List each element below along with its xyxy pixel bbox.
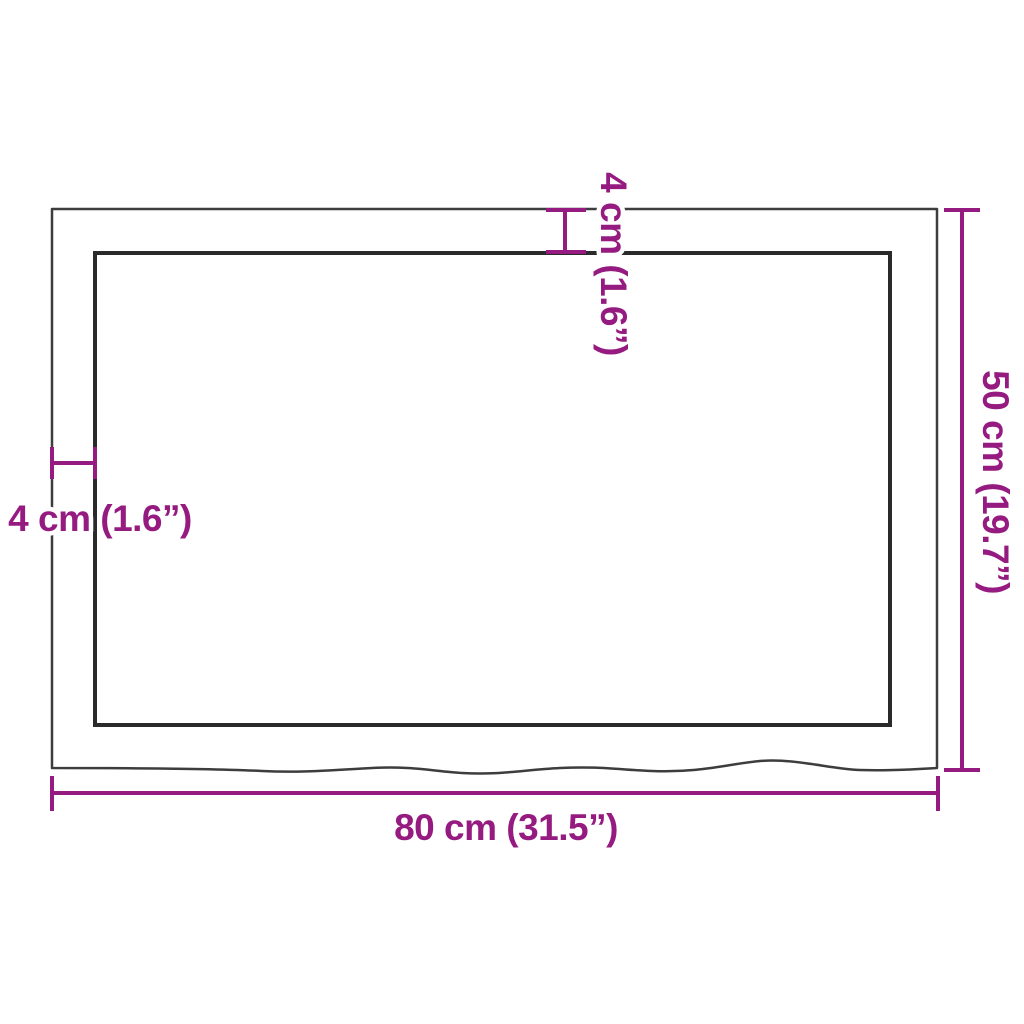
thickness-top-dimension-line [546,210,586,252]
height-label: 50 cm (19.7”) [975,370,1016,594]
thickness-left-dimension-line [52,447,95,479]
board-outer-edge [52,209,937,773]
width-dimension-line [52,776,938,811]
thickness-top-label: 4 cm (1.6”) [593,172,634,356]
height-dimension-line [944,210,980,770]
width-label: 80 cm (31.5”) [394,807,618,848]
dimension-diagram: 4 cm (1.6”) 4 cm (1.6”) 50 cm (19.7”) 80… [0,0,1024,1024]
thickness-left-label: 4 cm (1.6”) [8,498,192,539]
dimension-diagram-canvas: 4 cm (1.6”) 4 cm (1.6”) 50 cm (19.7”) 80… [0,0,1024,1024]
board-inner-edge [95,253,890,725]
